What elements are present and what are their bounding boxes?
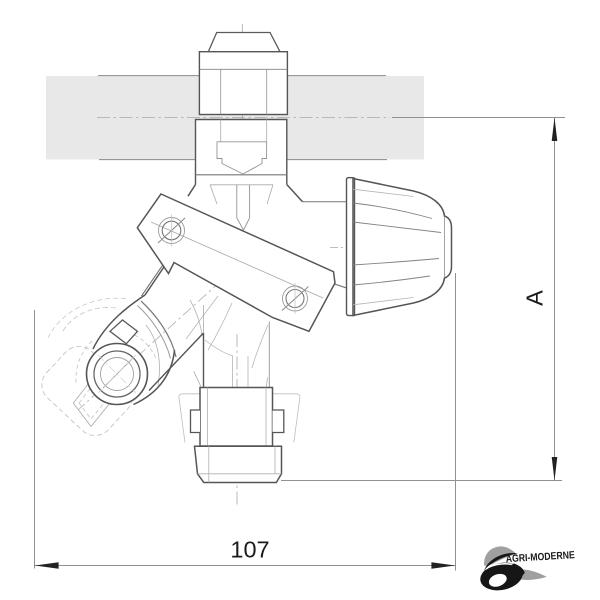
svg-text:107: 107	[230, 537, 269, 563]
svg-text:A: A	[522, 290, 548, 306]
